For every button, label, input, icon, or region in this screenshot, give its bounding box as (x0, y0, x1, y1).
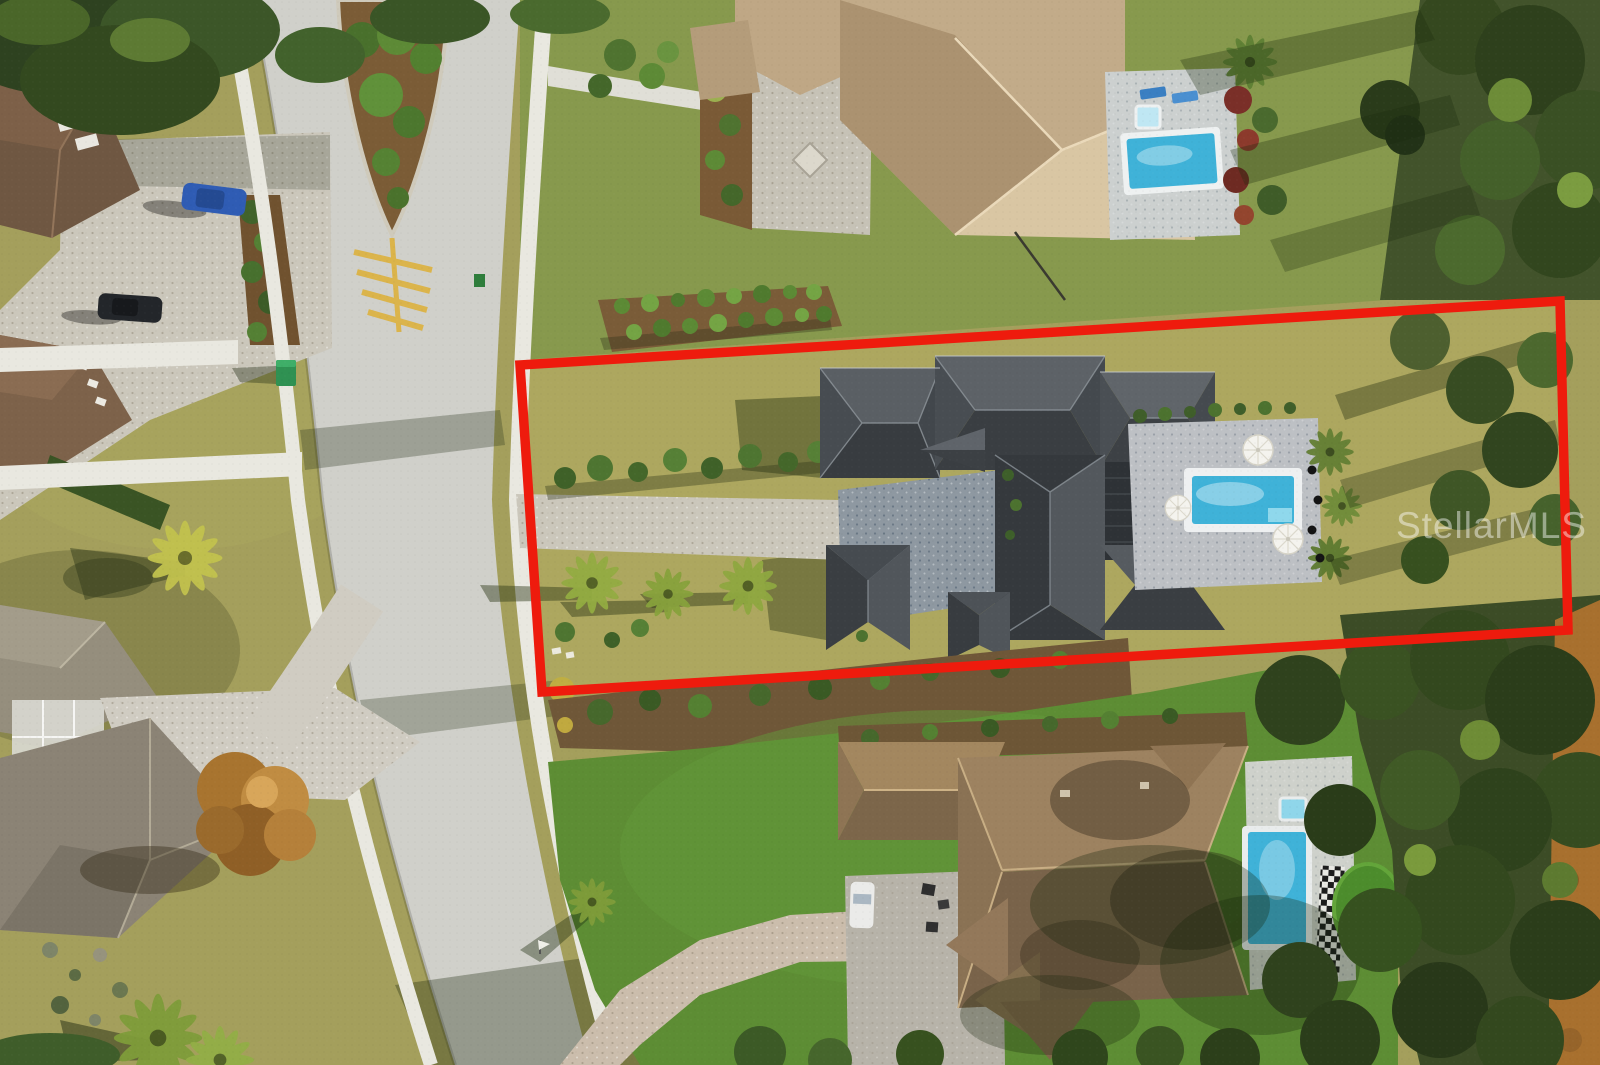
aerial-photo: StellarMLS (0, 0, 1600, 1065)
mls-watermark: StellarMLS (1396, 505, 1587, 546)
aerial-photo-canvas: StellarMLS (0, 0, 1600, 1065)
photo-grain (0, 0, 1600, 1065)
